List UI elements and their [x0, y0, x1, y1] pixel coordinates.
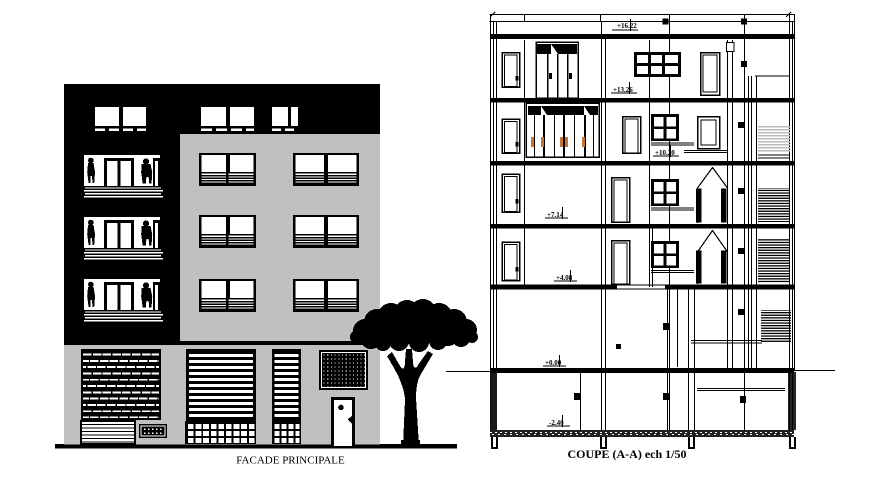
svg-text:+16.22: +16.22: [617, 22, 637, 30]
svg-text:FACADE PRINCIPALE: FACADE PRINCIPALE: [236, 455, 345, 467]
svg-text:COUPE (A-A) ech 1/50: COUPE (A-A) ech 1/50: [568, 447, 687, 461]
